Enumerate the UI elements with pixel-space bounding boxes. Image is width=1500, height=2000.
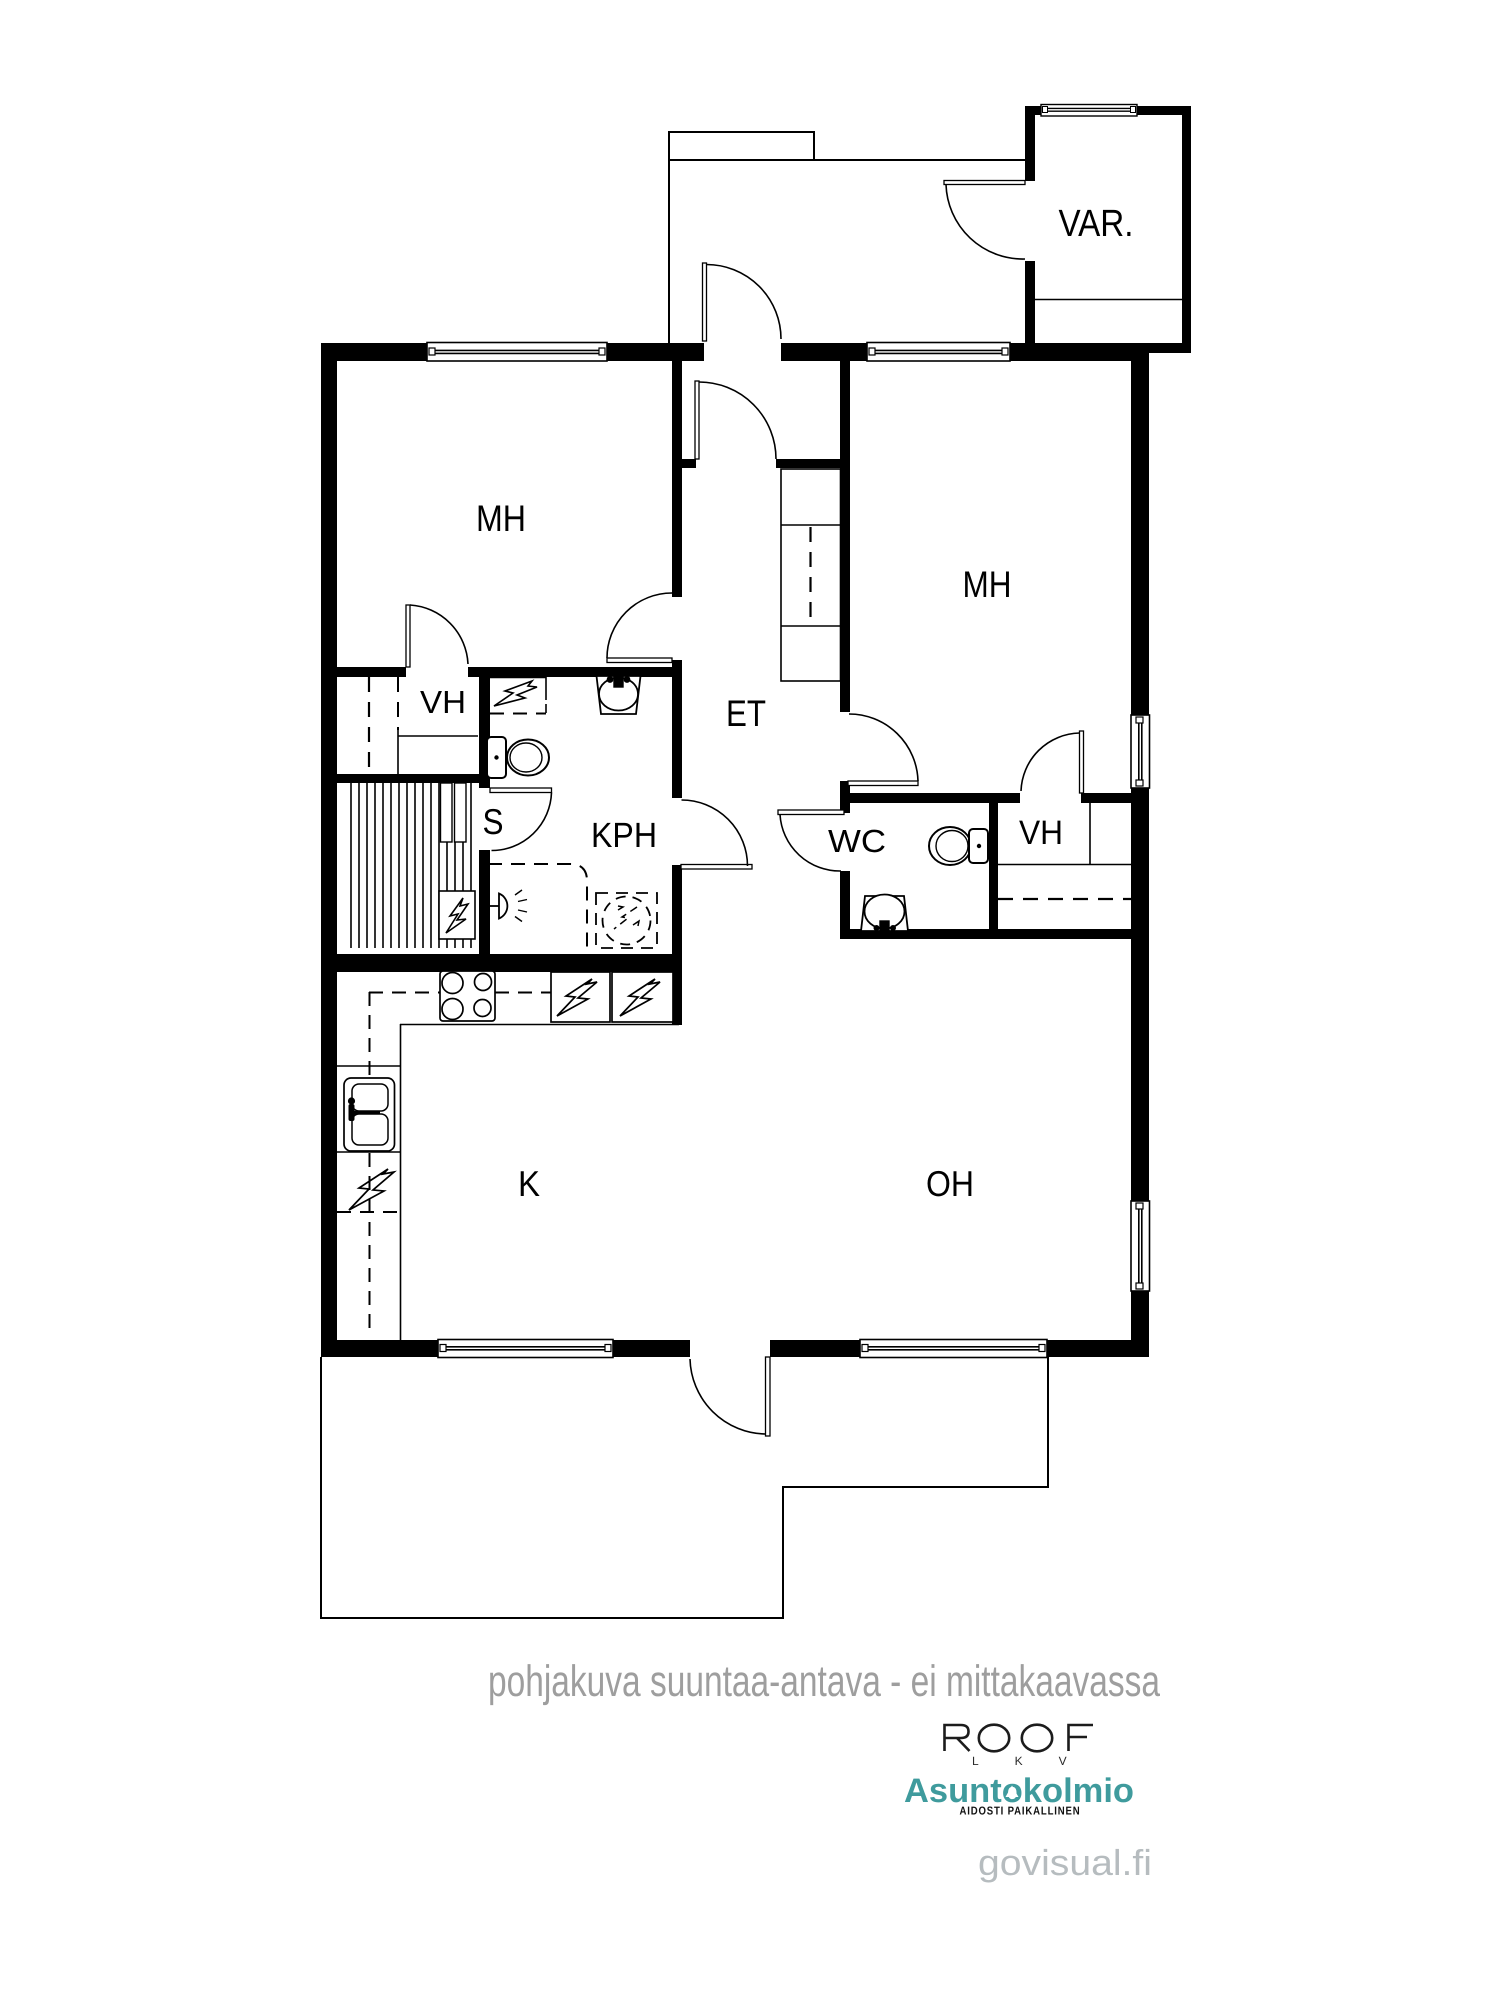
svg-text:MH: MH (476, 498, 526, 539)
svg-text:VAR.: VAR. (1059, 203, 1134, 245)
svg-text:KPH: KPH (591, 816, 657, 855)
svg-text:OH: OH (926, 1163, 974, 1204)
svg-text:K: K (518, 1163, 540, 1204)
svg-text:AIDOSTI PAIKALLINEN: AIDOSTI PAIKALLINEN (960, 1806, 1081, 1818)
svg-text:VH: VH (1019, 814, 1063, 852)
svg-text:ET: ET (726, 693, 766, 734)
svg-text:S: S (483, 801, 504, 842)
svg-text:LKV: LKV (972, 1754, 1103, 1768)
svg-text:WC: WC (828, 823, 886, 859)
svg-text:pohjakuva suuntaa-antava - ei: pohjakuva suuntaa-antava - ei mittakaava… (488, 1657, 1160, 1706)
svg-text:govisual.fi: govisual.fi (978, 1842, 1152, 1883)
svg-text:VH: VH (420, 684, 466, 720)
svg-text:MH: MH (963, 564, 1012, 605)
svg-text:Asuntokolmio: Asuntokolmio (904, 1772, 1134, 1810)
